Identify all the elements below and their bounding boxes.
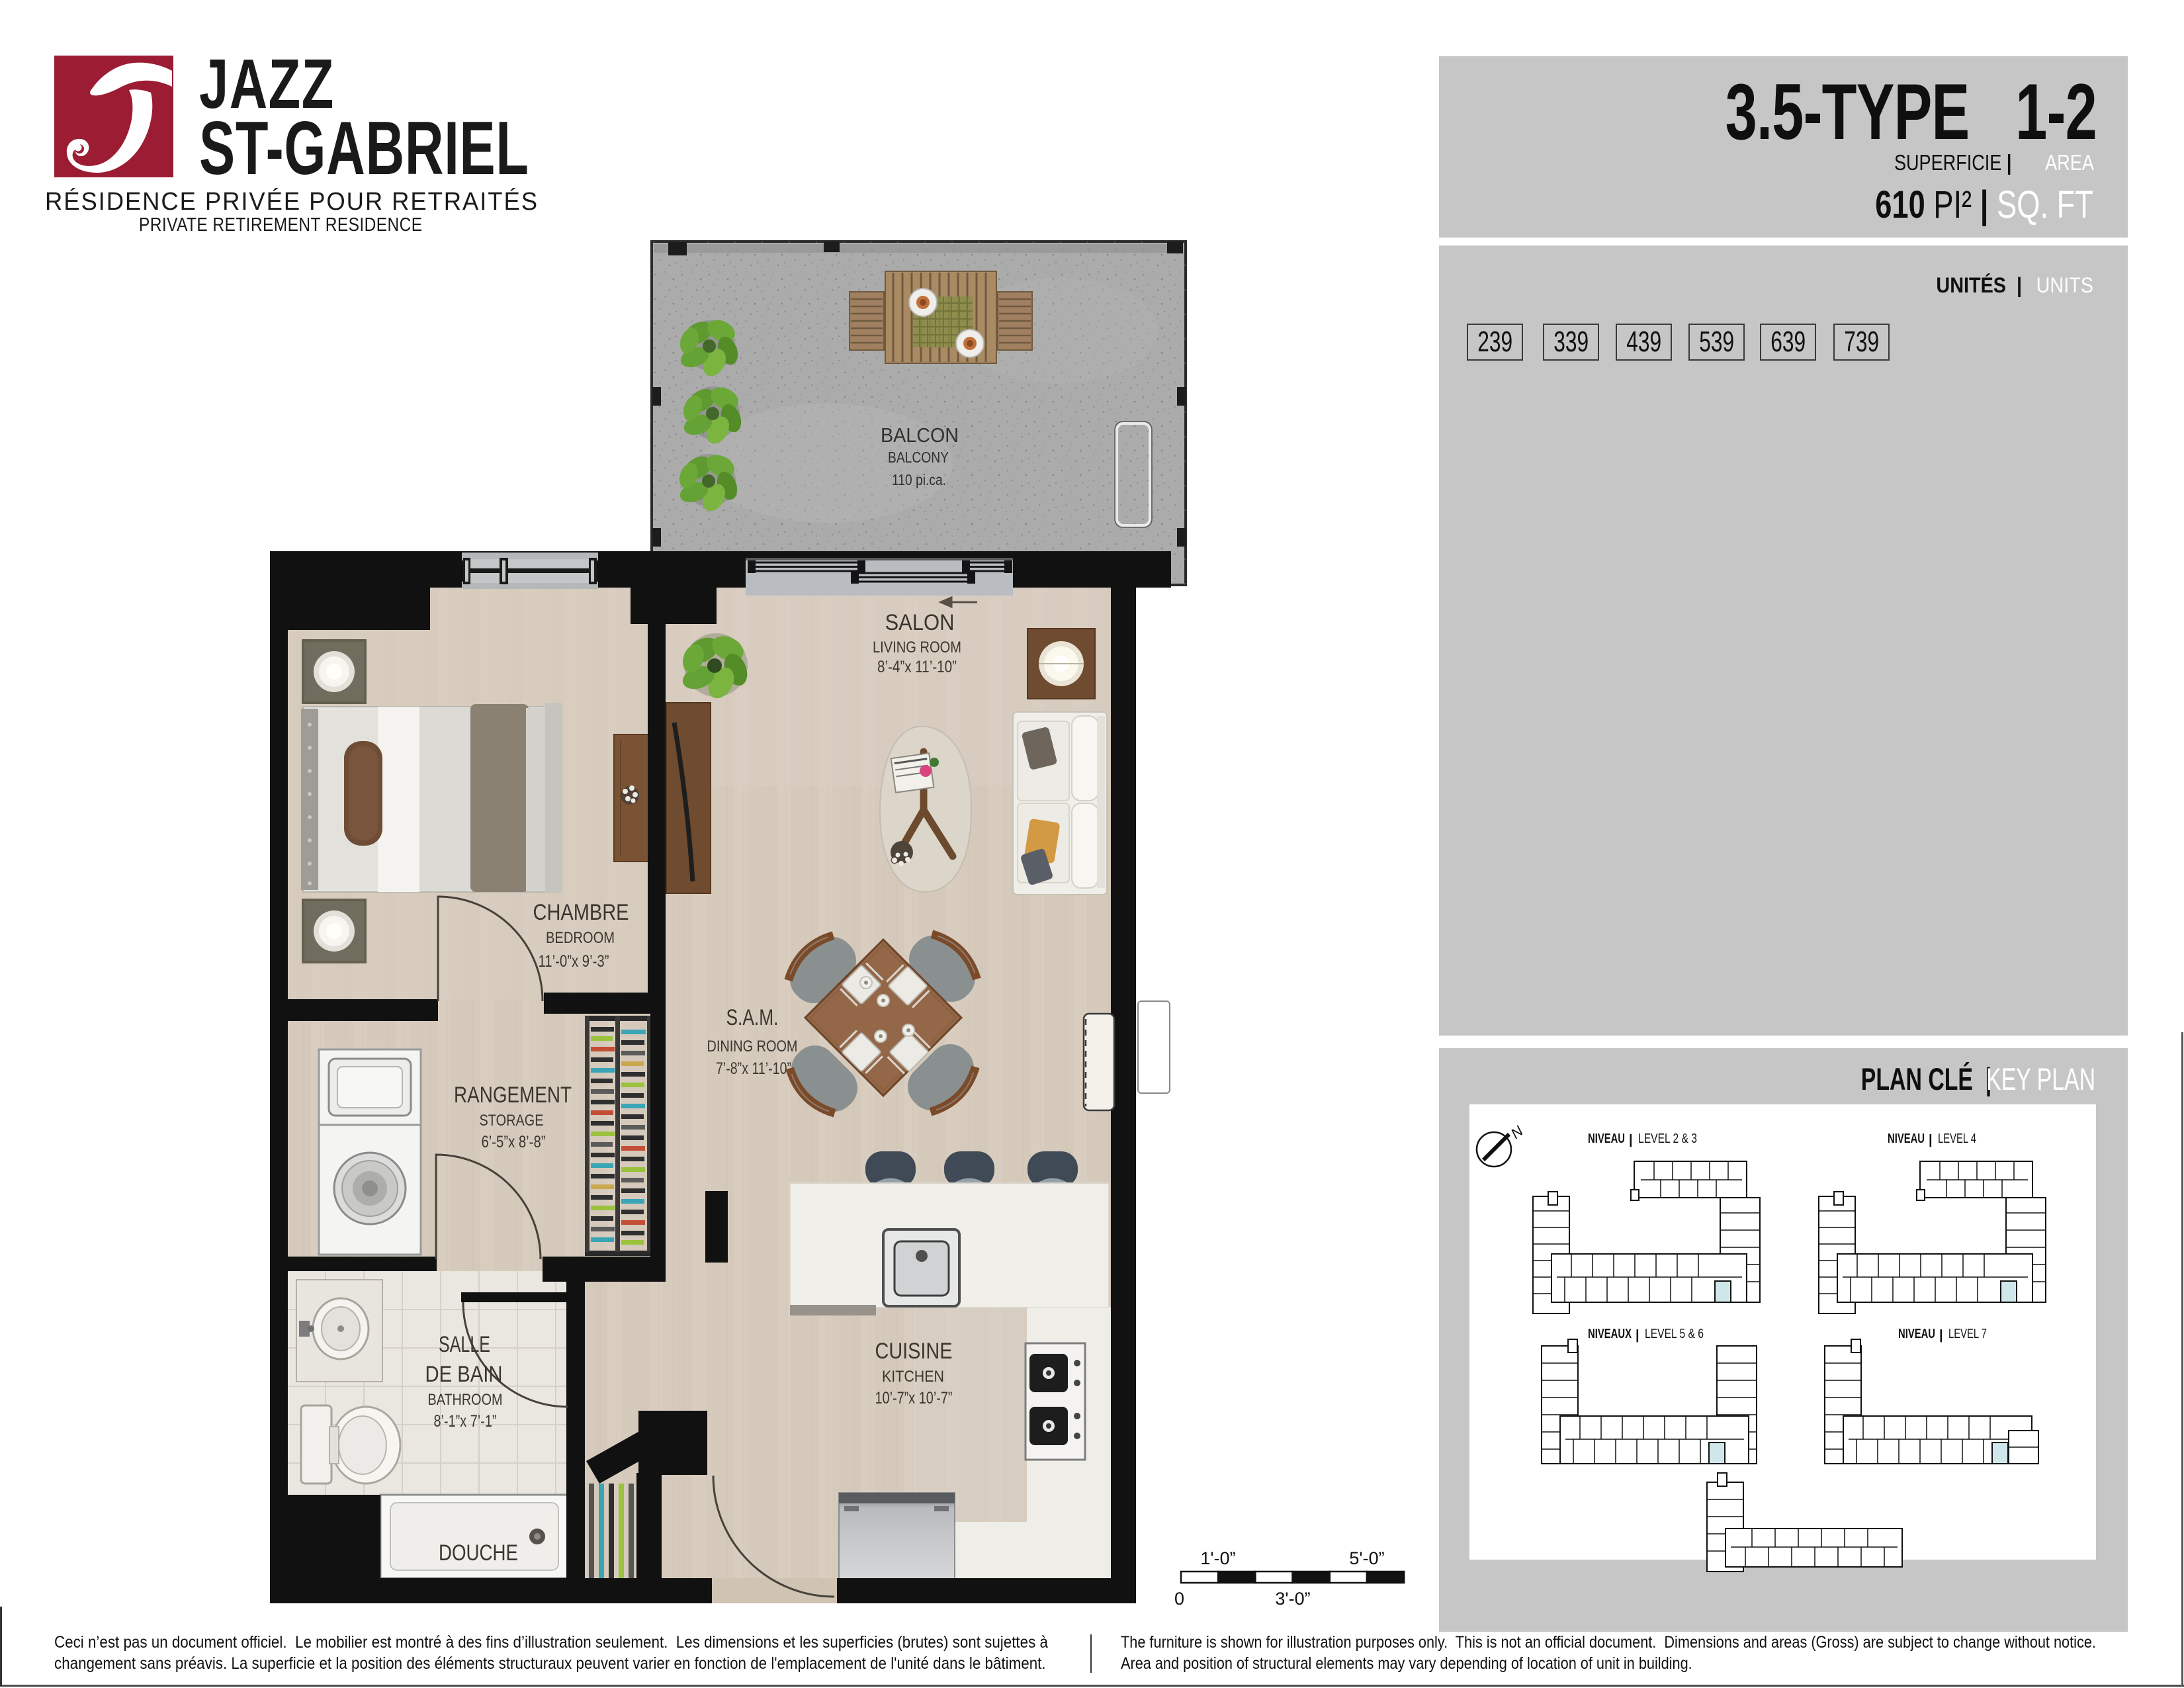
svg-text:LEVEL 4: LEVEL 4 (1938, 1132, 1976, 1146)
svg-text:LIVING ROOM: LIVING ROOM (873, 639, 961, 656)
svg-text:8’-4”x 11’-10”: 8’-4”x 11’-10” (877, 658, 957, 676)
svg-text:8’-1”x 7’-1”: 8’-1”x 7’-1” (434, 1412, 497, 1431)
svg-text:6’-5”x 8’-8”: 6’-5”x 8’-8” (482, 1133, 546, 1151)
svg-text:LEVEL 7: LEVEL 7 (1948, 1327, 1987, 1341)
svg-text:CUISINE: CUISINE (875, 1339, 953, 1364)
svg-text:NIVEAUX: NIVEAUX (1588, 1327, 1632, 1341)
svg-text:BATHROOM: BATHROOM (428, 1391, 503, 1409)
svg-text:|: | (1629, 1133, 1633, 1147)
svg-text:NIVEAU: NIVEAU (1888, 1132, 1925, 1146)
svg-text:3'-0”: 3'-0” (1275, 1589, 1310, 1609)
svg-text:7’-8”x 11’-10”: 7’-8”x 11’-10” (716, 1059, 791, 1078)
svg-text:KITCHEN: KITCHEN (882, 1368, 944, 1386)
svg-text:SALON: SALON (885, 610, 955, 635)
svg-text:RANGEMENT: RANGEMENT (454, 1083, 572, 1108)
svg-text:5'-0”: 5'-0” (1349, 1548, 1384, 1568)
svg-text:NIVEAU: NIVEAU (1588, 1132, 1625, 1146)
svg-text:STORAGE: STORAGE (480, 1112, 544, 1130)
svg-text:BALCONY: BALCONY (888, 449, 949, 466)
svg-text:|: | (1636, 1328, 1639, 1343)
svg-text:11’-0”x 9’-3”: 11’-0”x 9’-3” (539, 952, 609, 971)
svg-text:BALCON: BALCON (881, 423, 959, 447)
svg-text:0: 0 (1174, 1589, 1184, 1609)
svg-text:DINING ROOM: DINING ROOM (707, 1038, 798, 1055)
svg-text:NIVEAU: NIVEAU (1898, 1327, 1935, 1341)
svg-text:S.A.M.: S.A.M. (726, 1005, 779, 1030)
svg-text:1'-0”: 1'-0” (1200, 1548, 1235, 1568)
svg-text:LEVEL 5 & 6: LEVEL 5 & 6 (1645, 1327, 1704, 1341)
svg-text:DOUCHE: DOUCHE (439, 1540, 518, 1566)
svg-text:SALLE: SALLE (439, 1332, 490, 1357)
svg-text:BEDROOM: BEDROOM (546, 929, 615, 947)
svg-text:110 pi.ca.: 110 pi.ca. (892, 471, 946, 488)
svg-text:DE BAIN: DE BAIN (425, 1362, 503, 1387)
svg-text:|: | (1939, 1328, 1943, 1343)
svg-text:LEVEL 2 & 3: LEVEL 2 & 3 (1638, 1132, 1697, 1146)
svg-text:CHAMBRE: CHAMBRE (533, 900, 629, 925)
svg-text:10’-7”x 10’-7”: 10’-7”x 10’-7” (875, 1389, 953, 1407)
svg-text:N: N (1508, 1122, 1526, 1142)
svg-text:|: | (1929, 1133, 1933, 1147)
